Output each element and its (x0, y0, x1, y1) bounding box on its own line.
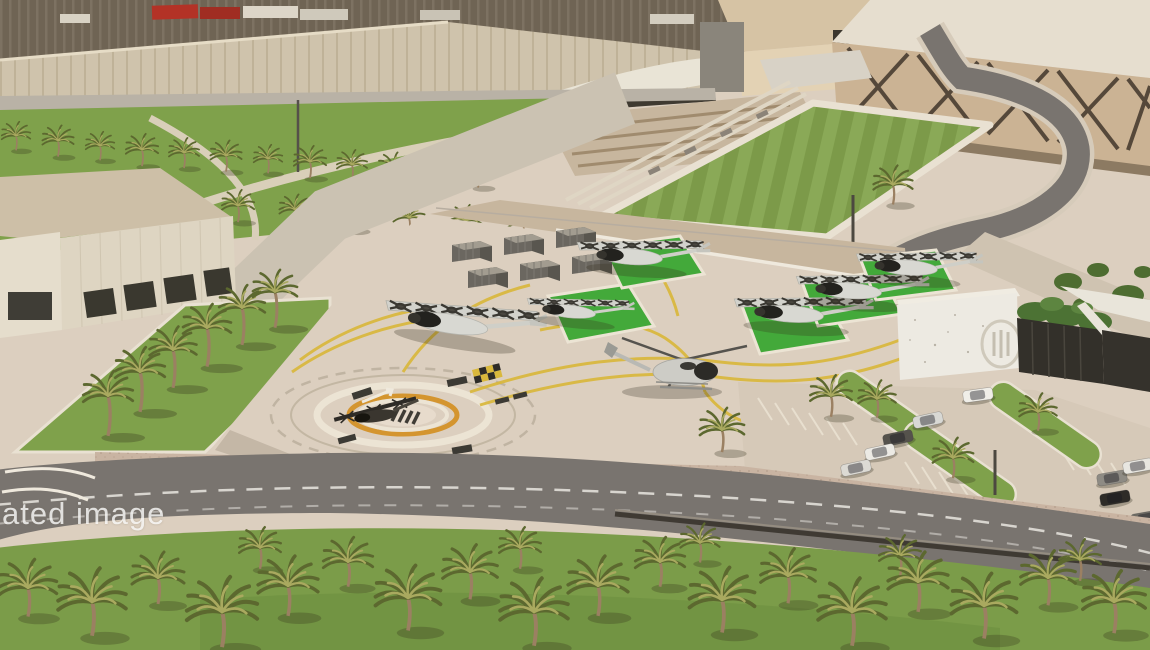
aerial-photo: ated image (0, 0, 1150, 650)
grey-annex (700, 22, 744, 92)
helicopter-canopy (694, 362, 718, 380)
office-wing (0, 232, 62, 338)
scene-canvas (0, 0, 1150, 650)
office-wing-window (8, 292, 52, 320)
watermark-text: ated image (2, 496, 165, 532)
terminal-right-wing (1102, 330, 1150, 392)
